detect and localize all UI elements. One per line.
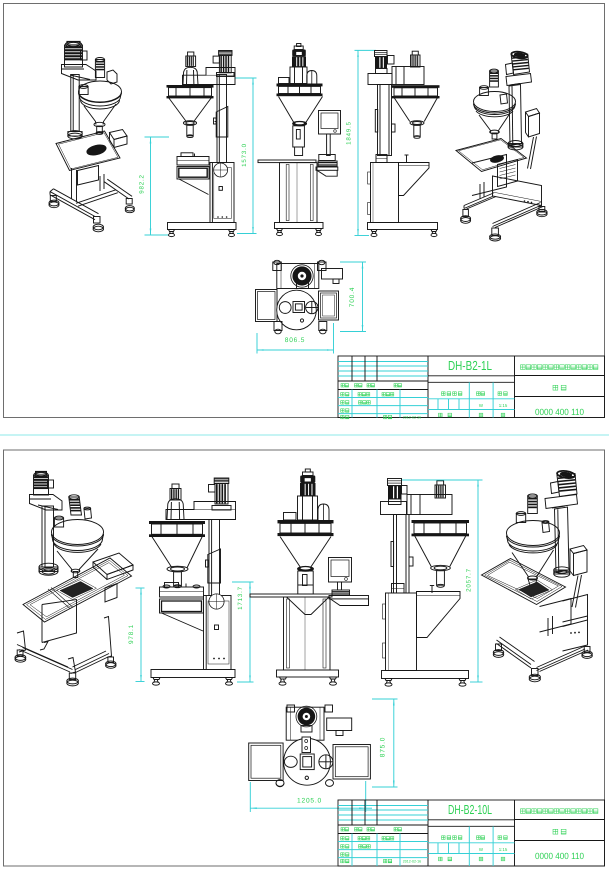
svg-text:1205.0: 1205.0 xyxy=(297,798,322,805)
svg-text:2057.7: 2057.7 xyxy=(466,568,473,592)
svg-text:0000 400 110: 0000 400 110 xyxy=(535,407,584,417)
svg-text:W: W xyxy=(479,847,484,852)
svg-text:2012-02-16: 2012-02-16 xyxy=(403,860,421,864)
svg-text:0000 400 110: 0000 400 110 xyxy=(535,851,584,861)
svg-text:DH-B2-1L: DH-B2-1L xyxy=(448,358,492,373)
svg-text:1:15: 1:15 xyxy=(499,403,508,408)
svg-text:875.0: 875.0 xyxy=(380,737,387,758)
svg-text:2012-02-16: 2012-02-16 xyxy=(403,416,421,420)
svg-text:1573.0: 1573.0 xyxy=(241,143,248,167)
svg-text:700.4: 700.4 xyxy=(349,287,356,308)
svg-text:W: W xyxy=(479,403,484,408)
svg-text:1849.5: 1849.5 xyxy=(346,121,353,145)
svg-text:982.2: 982.2 xyxy=(139,174,146,193)
svg-text:978.1: 978.1 xyxy=(128,624,135,644)
svg-text:806.5: 806.5 xyxy=(285,337,306,344)
svg-text:DH-B2-10L: DH-B2-10L xyxy=(448,802,492,817)
svg-text:1713.7: 1713.7 xyxy=(237,586,244,610)
svg-text:1:15: 1:15 xyxy=(499,847,508,852)
